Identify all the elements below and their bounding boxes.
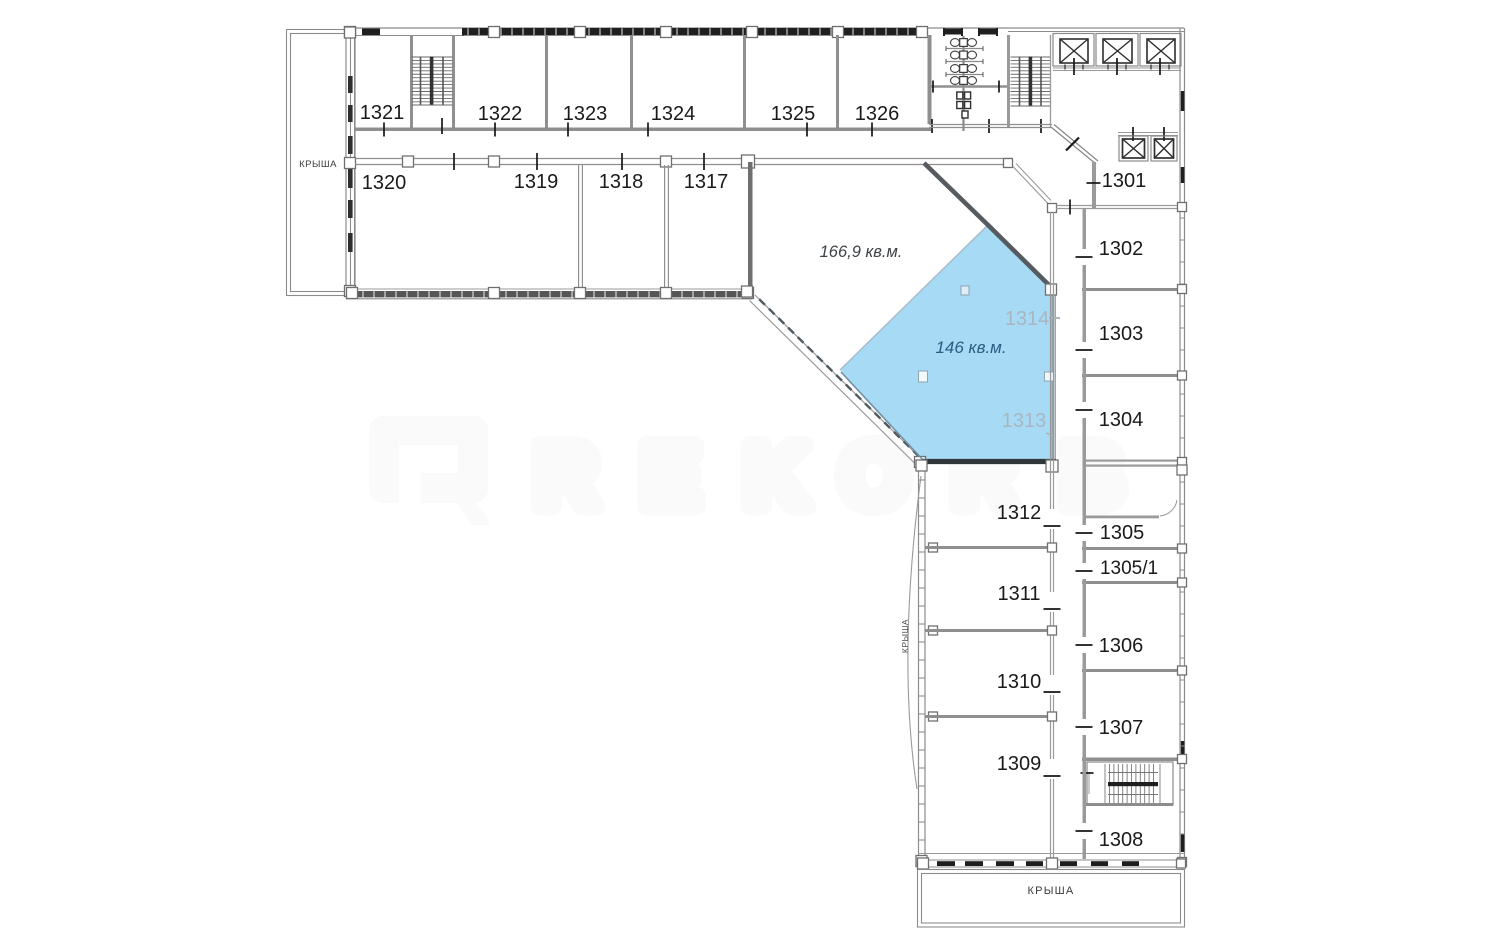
svg-text:1319: 1319 (514, 171, 559, 193)
svg-text:1321: 1321 (360, 102, 405, 124)
svg-text:1313: 1313 (1002, 410, 1047, 432)
svg-text:E: E (641, 426, 700, 525)
svg-text:R: R (534, 426, 598, 525)
svg-text:1314: 1314 (1005, 308, 1050, 330)
svg-text:1307: 1307 (1099, 717, 1144, 739)
svg-text:1304: 1304 (1099, 409, 1144, 431)
svg-text:КРЫША: КРЫША (1028, 885, 1075, 897)
svg-text:1323: 1323 (563, 103, 608, 125)
svg-text:1306: 1306 (1099, 635, 1144, 657)
svg-text:1324: 1324 (651, 103, 696, 125)
svg-text:1312: 1312 (997, 502, 1042, 524)
svg-text:КРЫША: КРЫША (900, 619, 910, 653)
svg-text:1301: 1301 (1102, 170, 1147, 192)
svg-text:1308: 1308 (1099, 829, 1144, 851)
svg-text:1317: 1317 (684, 171, 729, 193)
svg-text:1303: 1303 (1099, 323, 1144, 345)
svg-text:1309: 1309 (997, 753, 1042, 775)
svg-text:1302: 1302 (1099, 238, 1144, 260)
svg-text:КРЫША: КРЫША (299, 159, 337, 170)
svg-text:1311: 1311 (997, 583, 1040, 605)
svg-text:1320: 1320 (362, 172, 407, 194)
svg-text:B: B (1060, 426, 1124, 525)
svg-text:1318: 1318 (599, 171, 644, 193)
svg-text:K: K (744, 426, 808, 525)
svg-text:1310: 1310 (997, 671, 1042, 693)
svg-text:166,9 кв.м.: 166,9 кв.м. (820, 243, 903, 261)
svg-text:O: O (840, 426, 908, 525)
svg-text:1305: 1305 (1100, 522, 1145, 544)
svg-text:146 кв.м.: 146 кв.м. (935, 338, 1006, 357)
svg-text:1325: 1325 (771, 103, 816, 125)
svg-text:1322: 1322 (478, 103, 523, 125)
svg-text:1326: 1326 (855, 103, 900, 125)
svg-text:1305/1: 1305/1 (1100, 558, 1158, 579)
